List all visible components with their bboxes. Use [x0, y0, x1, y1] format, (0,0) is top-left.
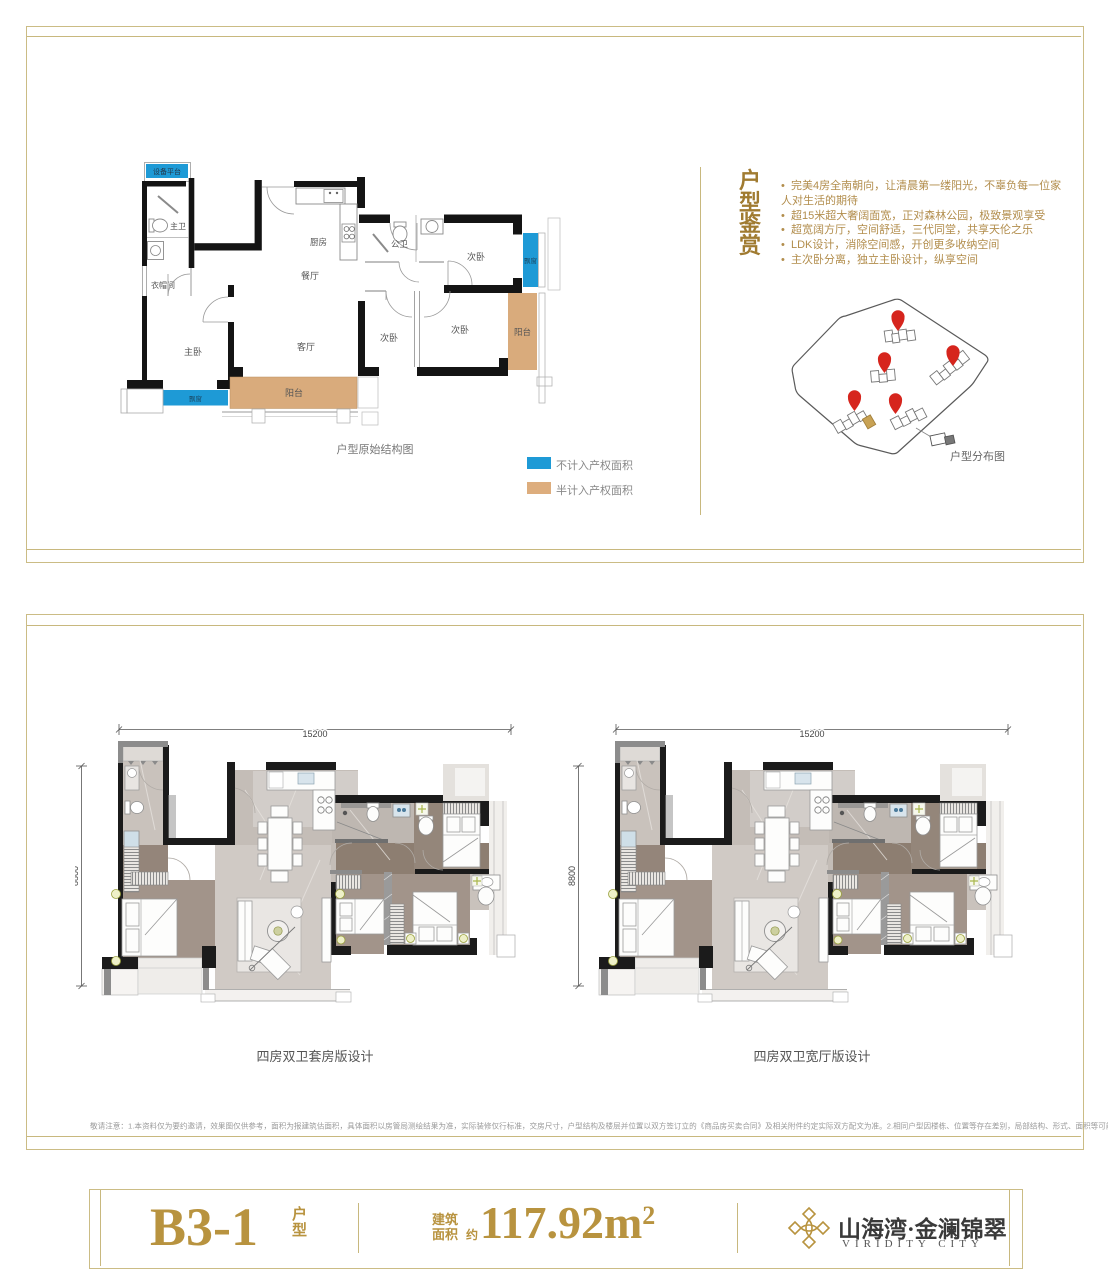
- svg-text:次卧: 次卧: [380, 332, 398, 343]
- svg-text:飘窗: 飘窗: [524, 256, 537, 265]
- svg-text:次卧: 次卧: [451, 324, 469, 335]
- svg-text:8800: 8800: [75, 866, 80, 886]
- svg-text:主卫: 主卫: [170, 221, 186, 231]
- svg-text:主卧: 主卧: [184, 346, 202, 357]
- svg-text:15200: 15200: [302, 729, 327, 739]
- svg-text:衣帽间: 衣帽间: [151, 280, 175, 290]
- svg-text:阳台: 阳台: [285, 387, 303, 398]
- svg-text:阳台: 阳台: [514, 327, 531, 337]
- svg-text:厨房: 厨房: [310, 237, 327, 247]
- svg-text:飘窗: 飘窗: [189, 394, 202, 403]
- svg-text:次卧: 次卧: [467, 251, 485, 262]
- svg-text:餐厅: 餐厅: [301, 270, 319, 281]
- svg-text:客厅: 客厅: [297, 341, 315, 352]
- svg-text:公卫: 公卫: [391, 239, 409, 249]
- svg-text:设备平台: 设备平台: [153, 167, 181, 176]
